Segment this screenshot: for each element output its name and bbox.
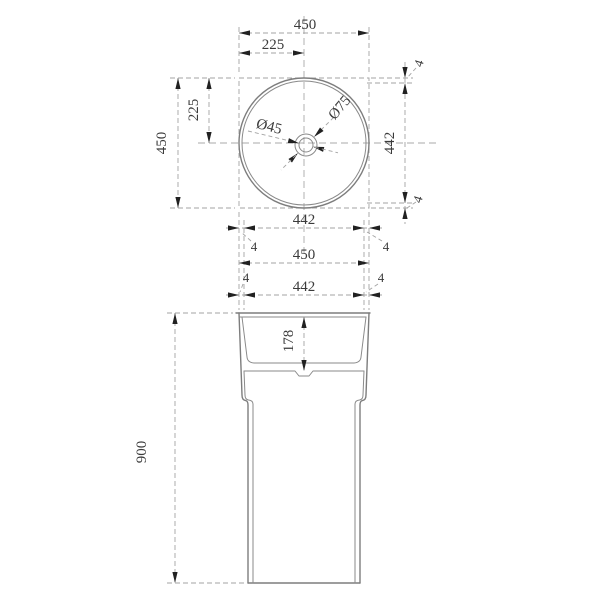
front-view: 178 900 bbox=[134, 313, 370, 583]
dim-outer-width-450: 450 bbox=[239, 247, 369, 266]
basin-technical-drawing: Ø45 Ø75 450 225 bbox=[0, 0, 600, 600]
drain-outer-circle bbox=[295, 134, 317, 156]
rim-dim-label: 4 bbox=[383, 239, 390, 254]
rim-dims-row1: 4 4 bbox=[241, 232, 390, 254]
dim-label: 450 bbox=[293, 247, 316, 263]
dim-drain-small: Ø45 bbox=[248, 116, 338, 153]
arrowhead bbox=[288, 138, 300, 146]
rim-dim-label: 4 bbox=[251, 239, 258, 254]
middle-dimensions: 442 4 4 450 4 4 442 bbox=[226, 212, 390, 310]
dim-label: 442 bbox=[293, 279, 316, 295]
drain-inner-circle bbox=[299, 138, 313, 152]
dim-drain-large: Ø75 bbox=[281, 93, 354, 170]
dim-label: 178 bbox=[281, 330, 297, 353]
dim-label: 225 bbox=[186, 99, 202, 122]
rim-dim-label: 4 bbox=[243, 270, 250, 285]
dim-inner-width-bottom-442: 442 bbox=[226, 279, 382, 298]
dim-total-height-900: 900 bbox=[134, 313, 245, 583]
rim-dim-label: 4 bbox=[410, 57, 426, 68]
dim-top-half-225: 225 bbox=[239, 37, 304, 56]
dim-label: 442 bbox=[293, 212, 316, 228]
bowl-underside-line bbox=[244, 371, 364, 376]
dim-label: 450 bbox=[294, 17, 317, 33]
dim-label: 450 bbox=[154, 132, 170, 155]
drawing-canvas: Ø45 Ø75 450 225 bbox=[0, 0, 600, 600]
dim-label: 442 bbox=[382, 132, 398, 155]
drain-small-label: Ø45 bbox=[255, 116, 284, 138]
dim-inner-width-top-442: 442 bbox=[226, 212, 382, 231]
dim-label: 900 bbox=[134, 441, 150, 464]
dim-right-442: 442 4 4 bbox=[367, 57, 427, 224]
dim-left-half-225: 225 bbox=[186, 78, 212, 143]
dim-label: 225 bbox=[262, 37, 285, 53]
rim-dim-label: 4 bbox=[378, 270, 385, 285]
